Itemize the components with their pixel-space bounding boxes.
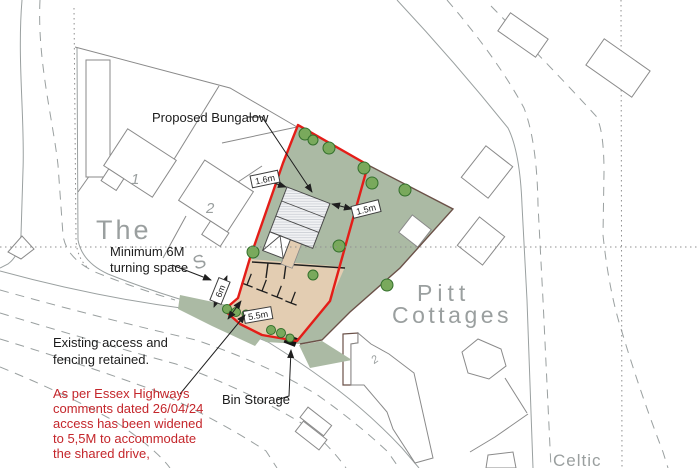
turning-space-label-line1: Minimum 6M (110, 244, 184, 259)
outbuilding-strip (86, 60, 110, 177)
tree-icon (323, 142, 335, 154)
highways-note-line3: access has been widened (53, 416, 203, 431)
cottage-bays (291, 407, 335, 450)
turning-space-label-line2: turning space (110, 260, 188, 275)
tree-icon (358, 162, 370, 174)
highways-note-line5: the shared drive, (53, 446, 150, 461)
existing-access-label-line2: fencing retained. (53, 352, 149, 367)
pitt-cottages-terrace (351, 333, 433, 463)
street-label-s: S (190, 251, 209, 275)
house-number-2: 2 (205, 200, 215, 217)
building-northeast-2 (586, 39, 650, 97)
cottages-label: Cottages (392, 302, 512, 328)
tree-icon (267, 326, 276, 335)
tree-icon (247, 246, 259, 258)
left-road-west-edge (0, 0, 23, 268)
fence-a (222, 127, 297, 143)
highways-note-line1: As per Essex Highways (53, 386, 190, 401)
celtic-fence-2 (470, 414, 528, 452)
celtic-fence-1 (505, 378, 527, 413)
building-bottom-edge (486, 452, 516, 468)
site-plan-drawing: 1.6m 1.5m 5.5m 6m Proposed Bungalow Mini… (0, 0, 700, 468)
tree-icon (286, 334, 294, 342)
tree-icon (277, 329, 286, 338)
tree-icon (399, 184, 411, 196)
tree-icon (366, 177, 378, 189)
highways-note-line4: to 5,5M to accommodate (53, 431, 196, 446)
house-number-1: 1 (131, 171, 139, 188)
site-plan-page: 1.6m 1.5m 5.5m 6m Proposed Bungalow Mini… (0, 0, 700, 468)
street-label-the: The (96, 215, 152, 245)
existing-access-label-line1: Existing access and (53, 335, 168, 350)
tree-icon (333, 240, 345, 252)
tree-icon (223, 305, 232, 314)
bin-storage-label: Bin Storage (222, 392, 290, 407)
dim-box-turning-depth: 6m (210, 278, 230, 305)
building-northeast-1 (498, 13, 548, 57)
highways-note-line2: comments dated 26/04/24 (53, 401, 203, 416)
tree-icon (308, 270, 318, 280)
tree-icon (308, 135, 318, 145)
building-east-1 (461, 146, 512, 198)
celtic-label: Celtic (553, 451, 602, 468)
proposed-bungalow-label: Proposed Bungalow (152, 110, 269, 125)
pitt-outbuilding (462, 339, 506, 379)
building-east-2 (457, 217, 504, 265)
tree-icon (381, 279, 393, 291)
